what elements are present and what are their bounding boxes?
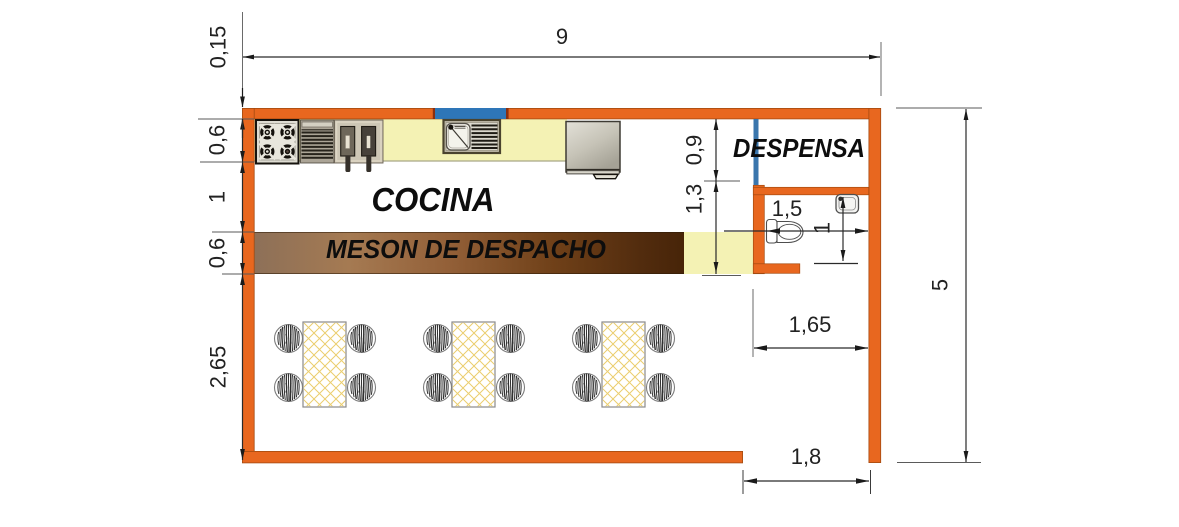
svg-text:9: 9 — [556, 24, 568, 49]
svg-text:1,8: 1,8 — [791, 444, 822, 469]
svg-text:0,6: 0,6 — [205, 238, 230, 269]
svg-text:1,65: 1,65 — [789, 312, 832, 337]
svg-text:0,6: 0,6 — [205, 125, 230, 156]
svg-text:COCINA: COCINA — [372, 181, 495, 218]
svg-text:5: 5 — [928, 279, 953, 291]
svg-text:1,5: 1,5 — [772, 196, 803, 221]
svg-text:1,3: 1,3 — [682, 184, 707, 215]
svg-text:DESPENSA: DESPENSA — [733, 133, 865, 163]
svg-text:0,15: 0,15 — [206, 26, 231, 69]
svg-text:0,9: 0,9 — [682, 135, 707, 166]
svg-text:1: 1 — [810, 222, 835, 234]
svg-text:2,65: 2,65 — [206, 346, 231, 389]
svg-text:1: 1 — [205, 191, 230, 203]
svg-text:MESON DE DESPACHO: MESON DE DESPACHO — [326, 234, 606, 264]
